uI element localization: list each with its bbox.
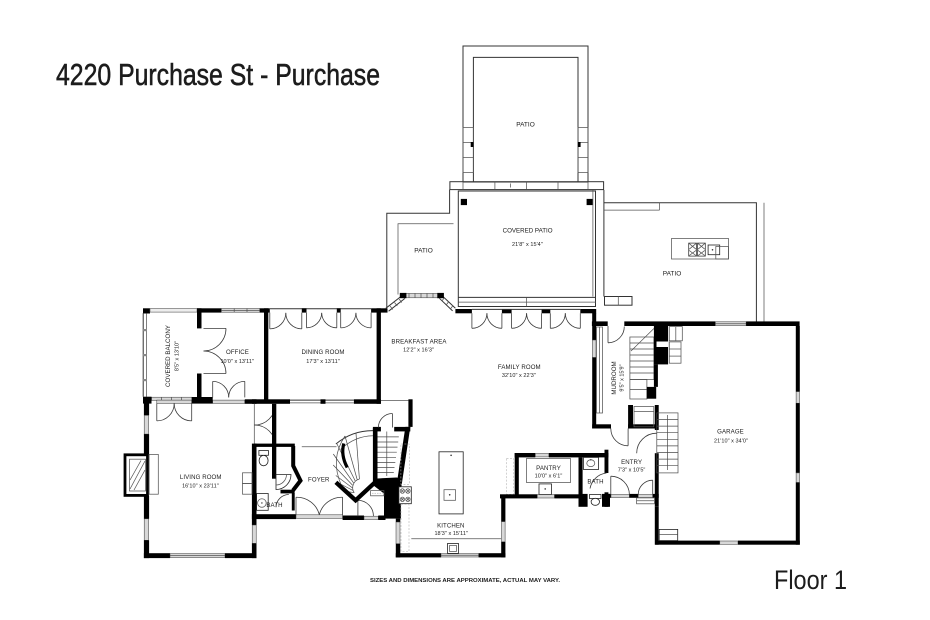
svg-text:18'3" x 15'11": 18'3" x 15'11" (434, 531, 468, 537)
svg-text:GARAGE: GARAGE (717, 429, 744, 436)
svg-text:4220 Purchase St - Purchase: 4220 Purchase St - Purchase (56, 57, 380, 92)
svg-text:PANTRY: PANTRY (536, 465, 561, 472)
svg-text:21'10" x 34'0": 21'10" x 34'0" (714, 438, 748, 444)
svg-text:17'3" x 13'11": 17'3" x 13'11" (306, 359, 340, 365)
svg-text:21'8" x 15'4": 21'8" x 15'4" (512, 242, 543, 248)
svg-text:FOYER: FOYER (308, 477, 330, 484)
svg-text:MUDROOM: MUDROOM (611, 361, 618, 394)
svg-text:BATH: BATH (587, 479, 603, 486)
svg-text:OFFICE: OFFICE (226, 349, 249, 356)
svg-text:KITCHEN: KITCHEN (437, 523, 464, 530)
svg-text:COVERED BALCONY: COVERED BALCONY (165, 325, 172, 387)
svg-text:SIZES AND DIMENSIONS ARE APPRO: SIZES AND DIMENSIONS ARE APPROXIMATE, AC… (370, 578, 560, 584)
svg-text:7'3" x 10'5": 7'3" x 10'5" (618, 468, 646, 474)
svg-text:PATIO: PATIO (414, 248, 433, 255)
svg-text:PATIO: PATIO (663, 271, 682, 278)
svg-text:9'5" x 15'9": 9'5" x 15'9" (620, 364, 626, 391)
svg-text:8'5" x 13'10": 8'5" x 13'10" (175, 341, 181, 371)
svg-text:FAMILY ROOM: FAMILY ROOM (498, 364, 541, 371)
svg-text:PATIO: PATIO (516, 122, 535, 129)
svg-text:COVERED PATIO: COVERED PATIO (503, 228, 553, 235)
svg-text:12'2" x 16'3": 12'2" x 16'3" (403, 348, 434, 354)
svg-text:LIVING ROOM: LIVING ROOM (180, 474, 222, 481)
svg-text:DINING ROOM: DINING ROOM (301, 349, 344, 356)
svg-text:16'10" x 23'11": 16'10" x 23'11" (182, 483, 219, 489)
svg-text:10'0" x 13'11": 10'0" x 13'11" (220, 359, 254, 365)
svg-text:32'10" x 22'3": 32'10" x 22'3" (502, 373, 536, 379)
svg-text:BREAKFAST AREA: BREAKFAST AREA (391, 339, 447, 346)
svg-text:10'0" x 6'1": 10'0" x 6'1" (535, 474, 563, 480)
svg-text:Floor 1: Floor 1 (774, 565, 847, 595)
svg-text:BATH: BATH (266, 502, 282, 509)
svg-text:ENTRY: ENTRY (621, 459, 642, 466)
